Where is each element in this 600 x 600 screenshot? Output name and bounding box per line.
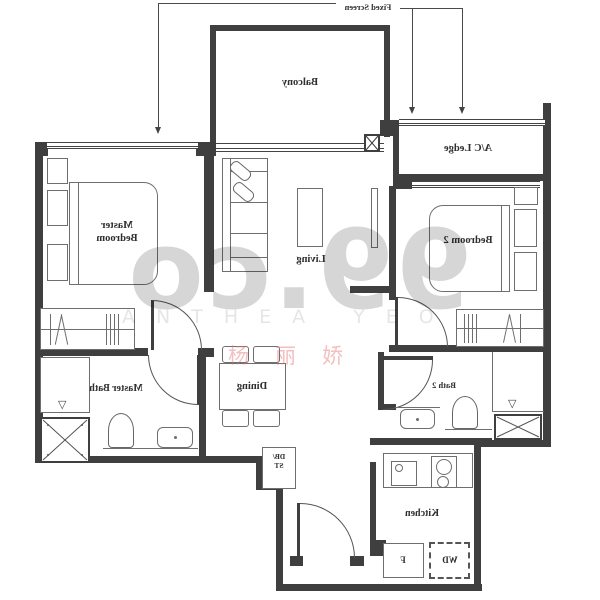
shower-partition-line <box>492 411 544 412</box>
callout-leader-line <box>400 8 462 9</box>
vanity-counter-line <box>395 407 440 408</box>
dresser-bedroom2 <box>514 187 538 205</box>
dining-chair <box>253 410 280 427</box>
label-line: DB/ <box>265 452 293 461</box>
wall <box>380 120 394 136</box>
wall <box>210 25 216 145</box>
nightstand <box>514 252 537 291</box>
label-db-st: DB/ ST <box>265 452 293 470</box>
sink-drain-dot <box>416 418 419 421</box>
shower-drain-icon: ▽ <box>58 399 66 410</box>
hanger-mark <box>520 314 521 343</box>
callout-leader-line <box>158 3 336 4</box>
nightstand <box>47 190 68 226</box>
vanity-counter-line <box>103 448 198 449</box>
wall <box>370 462 376 542</box>
toilet-bath2 <box>452 396 478 429</box>
room-label-balcony: Balcony <box>255 76 345 89</box>
callout-arrow-icon <box>155 127 161 134</box>
wall <box>370 438 492 445</box>
dining-chair <box>222 410 249 427</box>
room-label-bath2: Bath 2 <box>420 379 468 392</box>
hanger-mark <box>50 314 51 345</box>
window-master-bedroom <box>47 142 198 149</box>
sink-drain-dot <box>174 436 177 439</box>
floor-plan: Fixed Screen <box>0 0 600 600</box>
door-arc-entrance <box>300 503 355 558</box>
room-label-ac-ledge: A/C Ledge <box>423 142 513 155</box>
hanger-mark <box>472 314 473 343</box>
nightstand <box>514 209 537 247</box>
callout-arrow-icon <box>409 107 415 114</box>
hanger-mark <box>476 314 477 343</box>
kitchen-sink-tap-icon <box>395 464 403 472</box>
wall <box>393 120 399 180</box>
hob-burner-icon <box>437 476 449 488</box>
callout-leader-line <box>158 3 159 128</box>
window-fixed-screen-ac-ledge <box>399 119 545 126</box>
shower-drain-icon: ▽ <box>508 398 516 409</box>
agent-name-watermark: ANTHEA YEO <box>122 306 455 328</box>
sliding-door-balcony <box>216 143 384 152</box>
bathtub-x-bath2 <box>494 414 542 440</box>
toilet-master-bath <box>108 413 134 448</box>
hob-burner-icon <box>436 459 452 475</box>
wall <box>393 174 545 181</box>
callout-leader-line <box>462 8 463 108</box>
nightstand <box>47 244 68 281</box>
bed-headboard-line <box>501 206 502 291</box>
hanger-mark <box>114 314 115 345</box>
label-washer-dryer: WD <box>438 554 462 567</box>
wall <box>276 584 482 591</box>
bathtub-x-master-bath <box>40 417 90 463</box>
callout-arrow-icon <box>459 107 465 114</box>
column-x-icon <box>364 134 380 152</box>
hanger-mark <box>106 314 107 345</box>
label-fridge: F <box>393 554 413 567</box>
fixed-screen-label: Fixed Screen <box>330 1 406 14</box>
wall <box>210 25 390 31</box>
shower-partition-line <box>492 352 493 412</box>
label-line: ST <box>265 461 293 470</box>
hanger-mark <box>110 314 111 345</box>
callout-leader-line <box>412 8 413 108</box>
door-arc-master-bath <box>148 355 198 405</box>
room-label-master-bath: Master Bath <box>71 382 161 395</box>
room-label-dining: Dining <box>207 380 297 393</box>
room-label-kitchen: Kitchen <box>377 507 467 520</box>
wall <box>474 440 481 591</box>
dresser-master <box>47 158 68 184</box>
agent-cjk-watermark: 杨丽娇 <box>228 340 369 370</box>
wall <box>35 142 43 463</box>
wall <box>276 484 283 591</box>
wall <box>199 355 206 463</box>
wardrobe-rail-line <box>41 329 134 330</box>
wall <box>543 103 551 447</box>
hanger-mark <box>118 314 119 345</box>
vanity-counter-line <box>445 429 492 430</box>
